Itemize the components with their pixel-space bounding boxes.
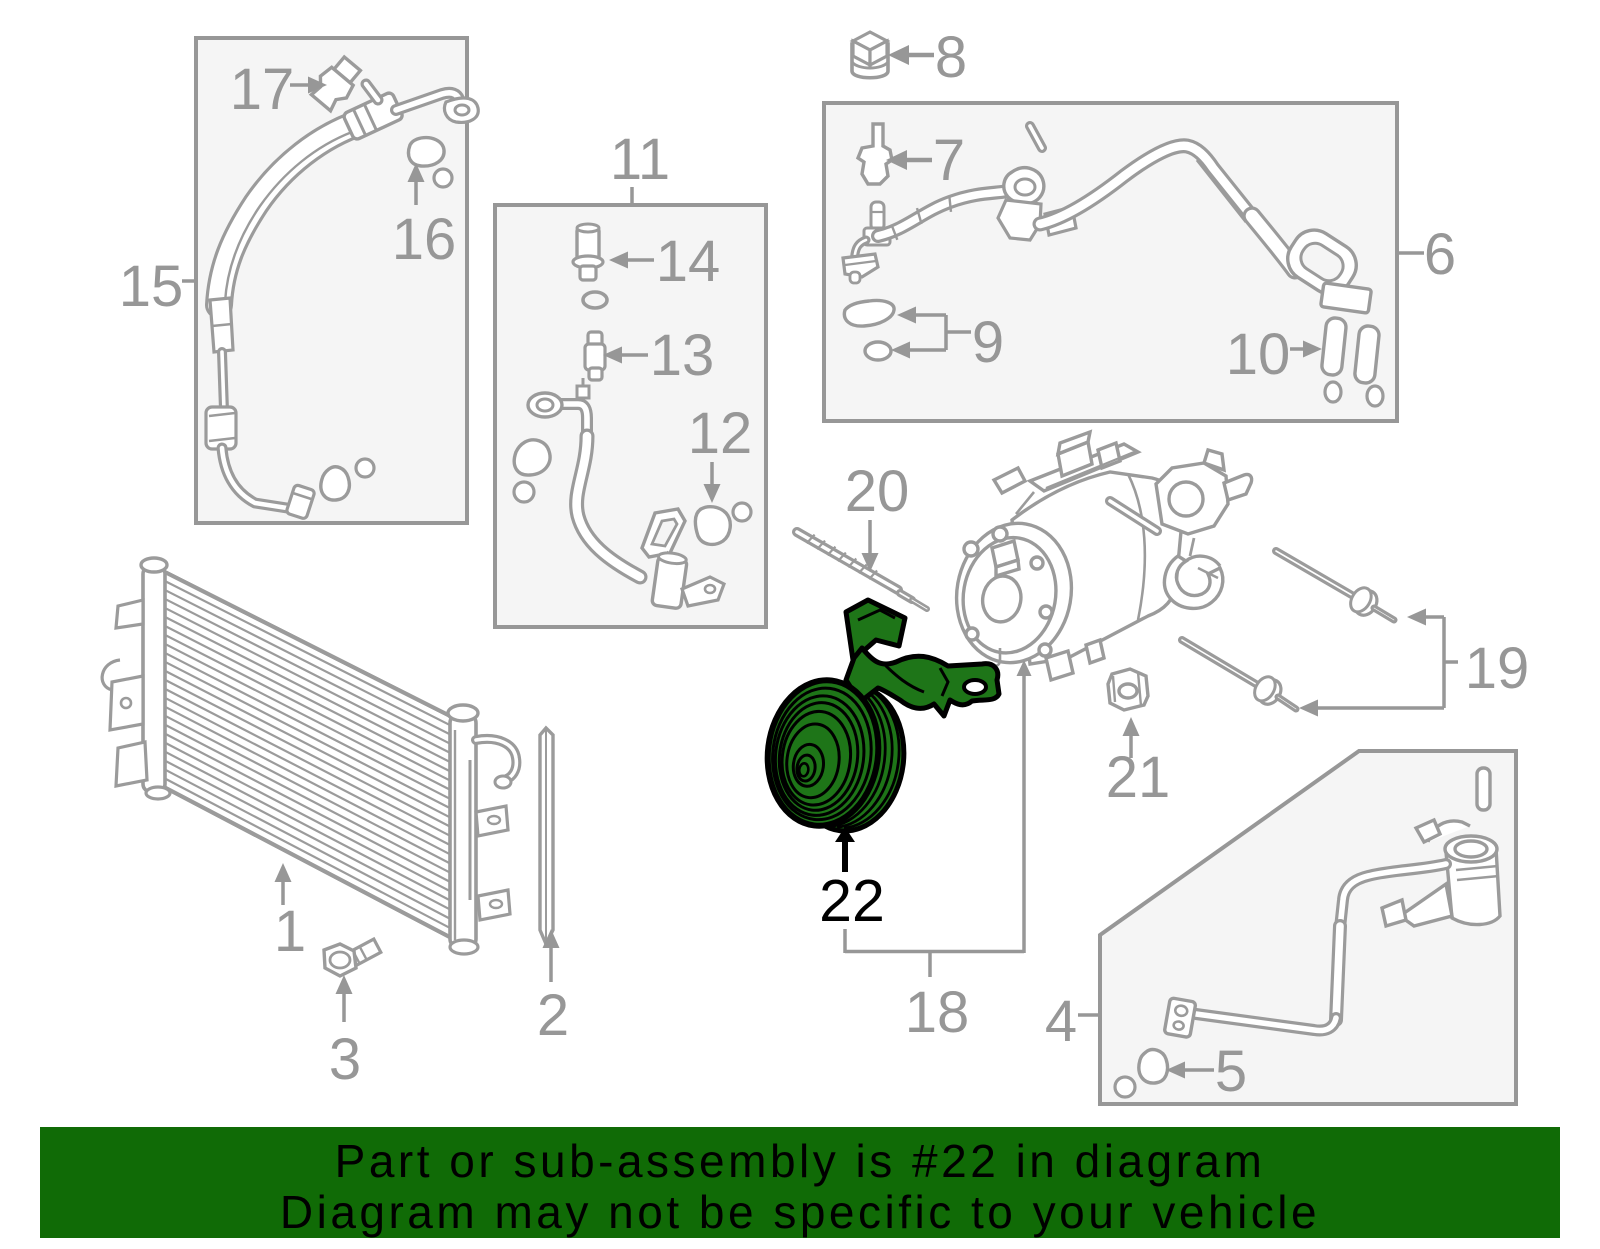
svg-text:20: 20: [845, 459, 910, 524]
svg-text:4: 4: [1045, 989, 1077, 1054]
svg-text:6: 6: [1424, 222, 1456, 287]
svg-text:2: 2: [537, 983, 569, 1048]
svg-text:12: 12: [688, 401, 753, 466]
svg-text:19: 19: [1465, 636, 1530, 701]
svg-text:21: 21: [1106, 745, 1171, 810]
svg-text:14: 14: [656, 229, 721, 294]
svg-text:Diagram may not be specific to: Diagram may not be specific to your vehi…: [280, 1186, 1320, 1238]
svg-text:5: 5: [1215, 1039, 1247, 1104]
svg-text:16: 16: [392, 207, 457, 272]
svg-text:17: 17: [230, 57, 295, 122]
svg-text:Part or sub-assembly is #22 in: Part or sub-assembly is #22 in diagram: [335, 1135, 1266, 1187]
svg-text:22: 22: [819, 868, 885, 934]
svg-text:11: 11: [610, 127, 670, 192]
svg-text:8: 8: [935, 25, 967, 90]
svg-text:18: 18: [905, 980, 970, 1045]
svg-text:15: 15: [119, 254, 184, 319]
svg-text:10: 10: [1226, 322, 1291, 387]
svg-text:13: 13: [650, 323, 715, 388]
svg-text:7: 7: [933, 128, 965, 193]
svg-text:9: 9: [972, 310, 1004, 375]
svg-text:3: 3: [329, 1027, 361, 1092]
svg-text:1: 1: [274, 899, 306, 964]
